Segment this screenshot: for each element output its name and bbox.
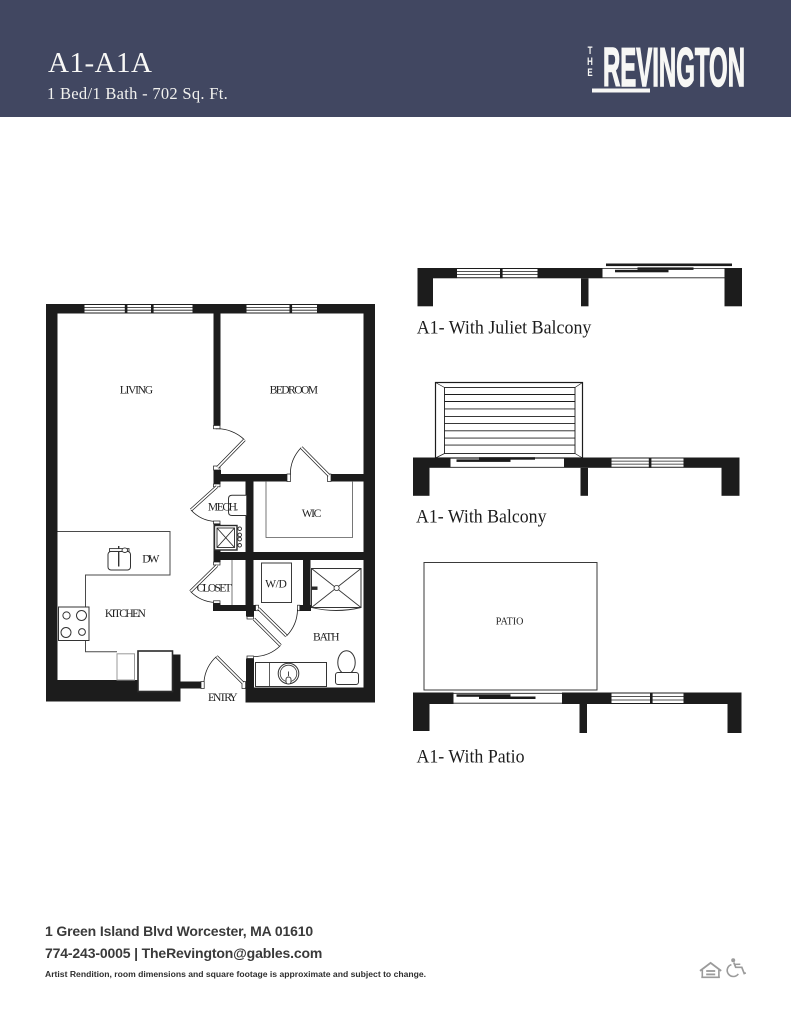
svg-text:ENTRY: ENTRY bbox=[208, 691, 238, 704]
svg-text:W/D: W/D bbox=[265, 577, 287, 590]
svg-text:A1- With Balcony: A1- With Balcony bbox=[416, 507, 547, 528]
svg-text:MECH.: MECH. bbox=[208, 501, 239, 514]
svg-text:BEDROOM: BEDROOM bbox=[270, 384, 319, 397]
svg-text:BATH: BATH bbox=[313, 631, 340, 644]
svg-text:PATIO: PATIO bbox=[496, 617, 524, 628]
svg-text:KITCHEN: KITCHEN bbox=[105, 607, 147, 620]
svg-text:DW: DW bbox=[142, 553, 159, 566]
svg-text:CLOSET: CLOSET bbox=[197, 582, 232, 595]
svg-text:A1- With Patio: A1- With Patio bbox=[417, 747, 525, 768]
svg-text:WIC: WIC bbox=[302, 507, 322, 520]
svg-text:LIVING: LIVING bbox=[120, 384, 154, 397]
svg-text:A1- With Juliet Balcony: A1- With Juliet Balcony bbox=[417, 318, 592, 339]
